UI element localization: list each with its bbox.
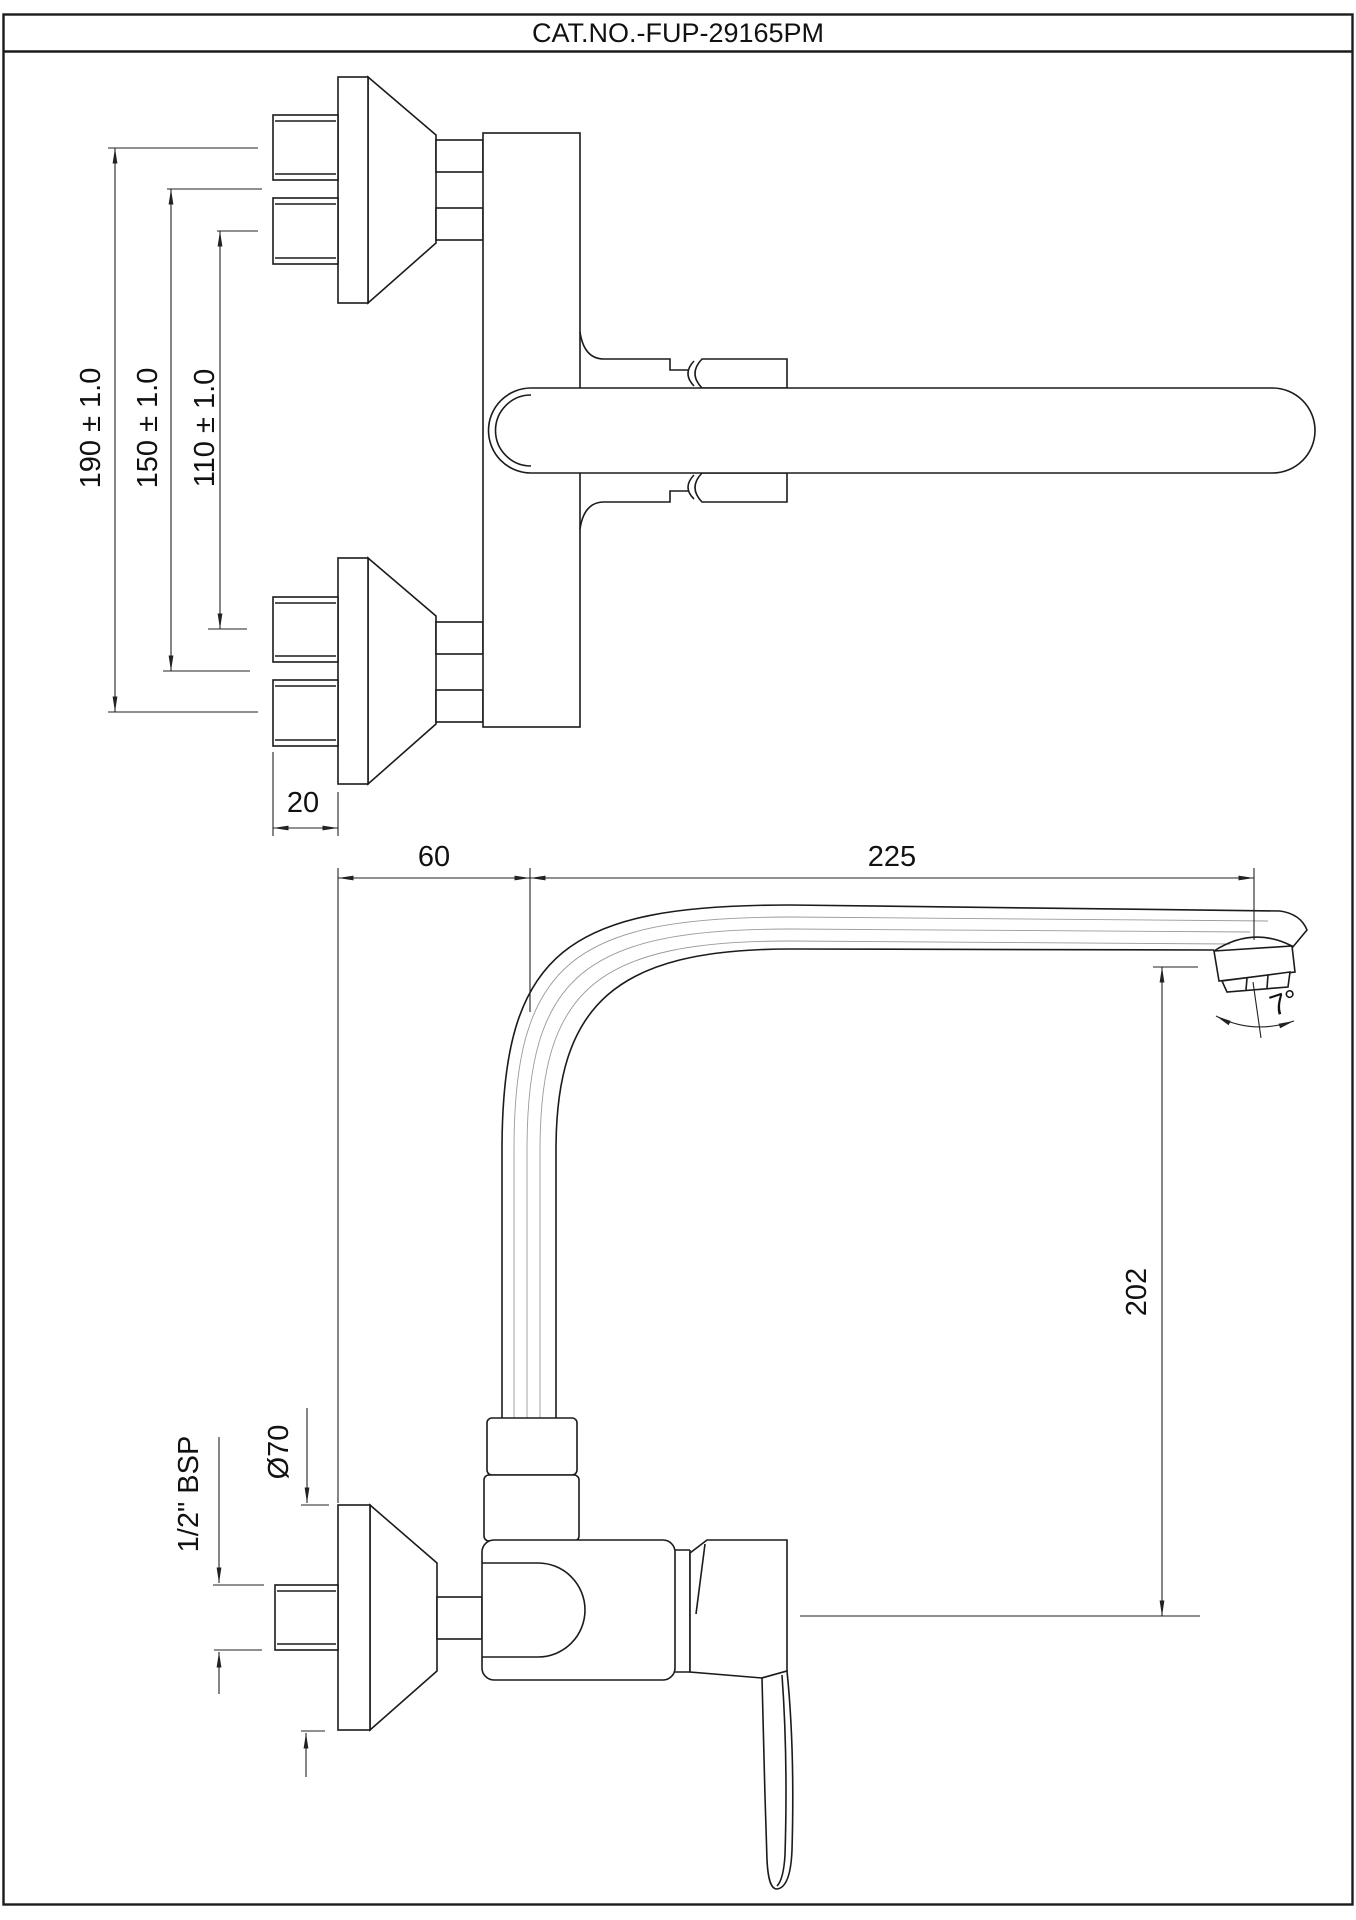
dim-label-bsp: 1/2" BSP — [173, 1436, 205, 1553]
page-border — [4, 15, 1353, 1905]
dim-label-20: 20 — [287, 787, 319, 819]
dim-label-diameter-70: Ø70 — [263, 1425, 295, 1480]
dimension-202: 202 — [800, 967, 1200, 1616]
handle-bar-plan — [489, 388, 1316, 473]
dim-label-7deg: 7° — [1266, 984, 1302, 1023]
dimension-190: 190 ± 1.0 — [75, 148, 258, 712]
dimension-225: 225 — [530, 841, 1254, 940]
spout-tube — [502, 905, 1307, 1419]
dim-label-60: 60 — [418, 841, 450, 873]
dimension-bsp-thread: 1/2" BSP — [173, 1436, 264, 1694]
top-view: 190 ± 1.0 150 ± 1.0 110 ± 1.0 20 — [75, 77, 1315, 836]
dimension-20: 20 — [273, 752, 338, 836]
wall-fitting-lower — [273, 558, 483, 784]
wall-fitting-side — [275, 1505, 482, 1730]
dim-label-225: 225 — [868, 841, 916, 873]
valve-body-side — [482, 1540, 690, 1680]
side-view: 60 225 202 Ø70 1/2" BSP 7° — [173, 841, 1307, 1889]
lever-handle — [690, 1540, 793, 1889]
dim-label-190: 190 ± 1.0 — [75, 368, 107, 489]
technical-drawing: CAT.NO.-FUP-29165PM — [0, 0, 1356, 1920]
dim-label-202: 202 — [1121, 1268, 1153, 1316]
drawing-sheet: CAT.NO.-FUP-29165PM — [0, 0, 1356, 1920]
dim-label-110: 110 ± 1.0 — [189, 369, 221, 488]
dim-label-150: 150 ± 1.0 — [132, 368, 164, 489]
dimension-110: 110 ± 1.0 — [189, 231, 258, 629]
riser-collars — [484, 1418, 579, 1541]
wall-fitting-upper — [273, 77, 483, 303]
sheet-title: CAT.NO.-FUP-29165PM — [532, 18, 824, 48]
aerator — [1214, 937, 1295, 992]
